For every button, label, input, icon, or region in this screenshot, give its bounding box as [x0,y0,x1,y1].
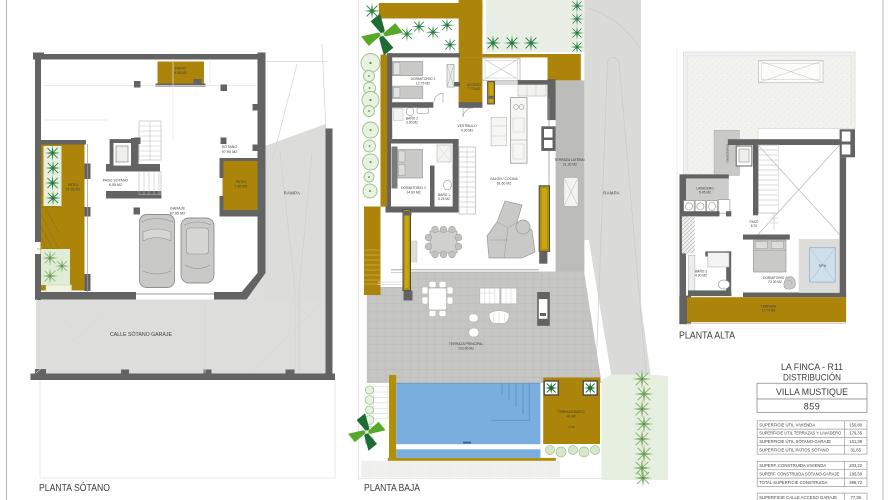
svg-text:SALÓN / COCINA: SALÓN / COCINA [490,176,518,181]
svg-text:23.30 M2: 23.30 M2 [768,280,782,284]
svg-text:PATIO: PATIO [175,67,185,71]
svg-text:PLANTA ALTA: PLANTA ALTA [679,331,735,342]
svg-text:859: 859 [804,402,821,412]
svg-text:LA FINCA - R11: LA FINCA - R11 [781,362,843,372]
svg-text:DISTRIBUCIÓN: DISTRIBUCIÓN [783,373,841,383]
svg-text:RAMPA: RAMPA [284,191,301,196]
svg-text:VILLA MUSTIQUE: VILLA MUSTIQUE [776,387,848,397]
svg-text:GARAJE: GARAJE [170,207,186,211]
svg-text:DORMITORIO 2: DORMITORIO 2 [411,77,436,81]
svg-text:41 M2: 41 M2 [567,415,576,419]
svg-text:77,36: 77,36 [850,495,861,500]
svg-text:31,65: 31,65 [850,447,861,452]
svg-text:12.75 M2: 12.75 M2 [416,82,430,86]
svg-text:PLANTA SÓTANO: PLANTA SÓTANO [39,481,110,494]
svg-text:TERRAZA PRINCIPAL: TERRAZA PRINCIPAL [449,342,483,346]
svg-text:7.65 M2: 7.65 M2 [235,185,248,189]
svg-text:9.30 M2: 9.30 M2 [461,129,473,133]
svg-text:21.30 M2: 21.30 M2 [563,163,577,167]
svg-text:SUPERF. CONSTRUIDA VIVIENDA: SUPERF. CONSTRUIDA VIVIENDA [759,463,826,468]
svg-text:7.75 M2: 7.75 M2 [468,87,480,91]
svg-text:PLANTA BAJA: PLANTA BAJA [364,483,420,494]
svg-text:CALLE SÓTANO GARAJE: CALLE SÓTANO GARAJE [110,331,173,338]
svg-text:5.45 M2: 5.45 M2 [699,191,711,195]
svg-text:6.55 M2: 6.55 M2 [109,183,122,187]
svg-text:SUPERFICIE ÚTIL VIVIENDA: SUPERFICIE ÚTIL VIVIENDA [759,422,815,427]
svg-text:PATIO: PATIO [68,183,78,187]
svg-text:VESTÍBULO: VESTÍBULO [457,124,476,128]
svg-text:4.90 M2: 4.90 M2 [695,274,707,278]
svg-text:8.70: 8.70 [751,224,758,228]
svg-text:TENDEDERO: TENDEDERO [726,144,730,164]
svg-text:SUPERFICIE CALLE ACCESO GARAJE: SUPERFICIE CALLE ACCESO GARAJE [759,495,837,500]
svg-text:150,80: 150,80 [849,422,862,427]
svg-text:9.95 M2: 9.95 M2 [174,71,187,75]
svg-text:PATIO: PATIO [236,180,246,184]
svg-text:61.60 M2: 61.60 M2 [497,182,511,186]
svg-text:SPA: SPA [818,264,826,268]
svg-text:SUPERFICIE ÚTIL PATIOS SÓTANO: SUPERFICIE ÚTIL PATIOS SÓTANO [759,447,829,452]
svg-text:SUPERF. CONSTRUIDA SÓTANO-GARA: SUPERF. CONSTRUIDA SÓTANO-GARAJE [759,471,839,476]
svg-text:179,35: 179,35 [849,431,862,436]
svg-text:SÓTANO: SÓTANO [222,144,238,149]
svg-text:57.35 M2: 57.35 M2 [66,188,81,192]
svg-text:398,72: 398,72 [849,480,862,485]
svg-text:195,50: 195,50 [849,471,862,476]
svg-text:RAMPA: RAMPA [603,191,620,196]
svg-text:14.60 M2: 14.60 M2 [406,191,420,195]
svg-text:47.95 M2: 47.95 M2 [170,212,186,216]
svg-text:97.90 M2: 97.90 M2 [222,150,238,154]
svg-text:17.70 M2: 17.70 M2 [762,309,776,313]
svg-text:203,22: 203,22 [849,463,862,468]
svg-text:DORMITORIO 1: DORMITORIO 1 [401,186,426,190]
svg-text:103.90 M2: 103.90 M2 [458,347,474,351]
svg-text:TERRAZA LATERAL: TERRAZA LATERAL [554,158,586,162]
svg-text:SUPERFICIE ÚTIL TERRAZAS Y LAV: SUPERFICIE ÚTIL TERRAZAS Y LAVADERO [759,431,842,436]
svg-text:TERRAZA BARCO: TERRAZA BARCO [558,410,586,414]
svg-text:SUPERFICIE ÚTIL SÓTANO-GARAJE: SUPERFICIE ÚTIL SÓTANO-GARAJE [759,439,831,444]
svg-text:PASO SÓTANO: PASO SÓTANO [103,178,129,183]
svg-text:3.00: 3.00 [569,425,575,429]
svg-text:161,38: 161,38 [849,439,862,444]
svg-text:TOTAL SUPERFICIE CONSTRUIDA: TOTAL SUPERFICIE CONSTRUIDA [759,480,827,485]
svg-text:3.90 M2: 3.90 M2 [406,121,418,125]
svg-text:5.25 M2: 5.25 M2 [438,197,450,201]
